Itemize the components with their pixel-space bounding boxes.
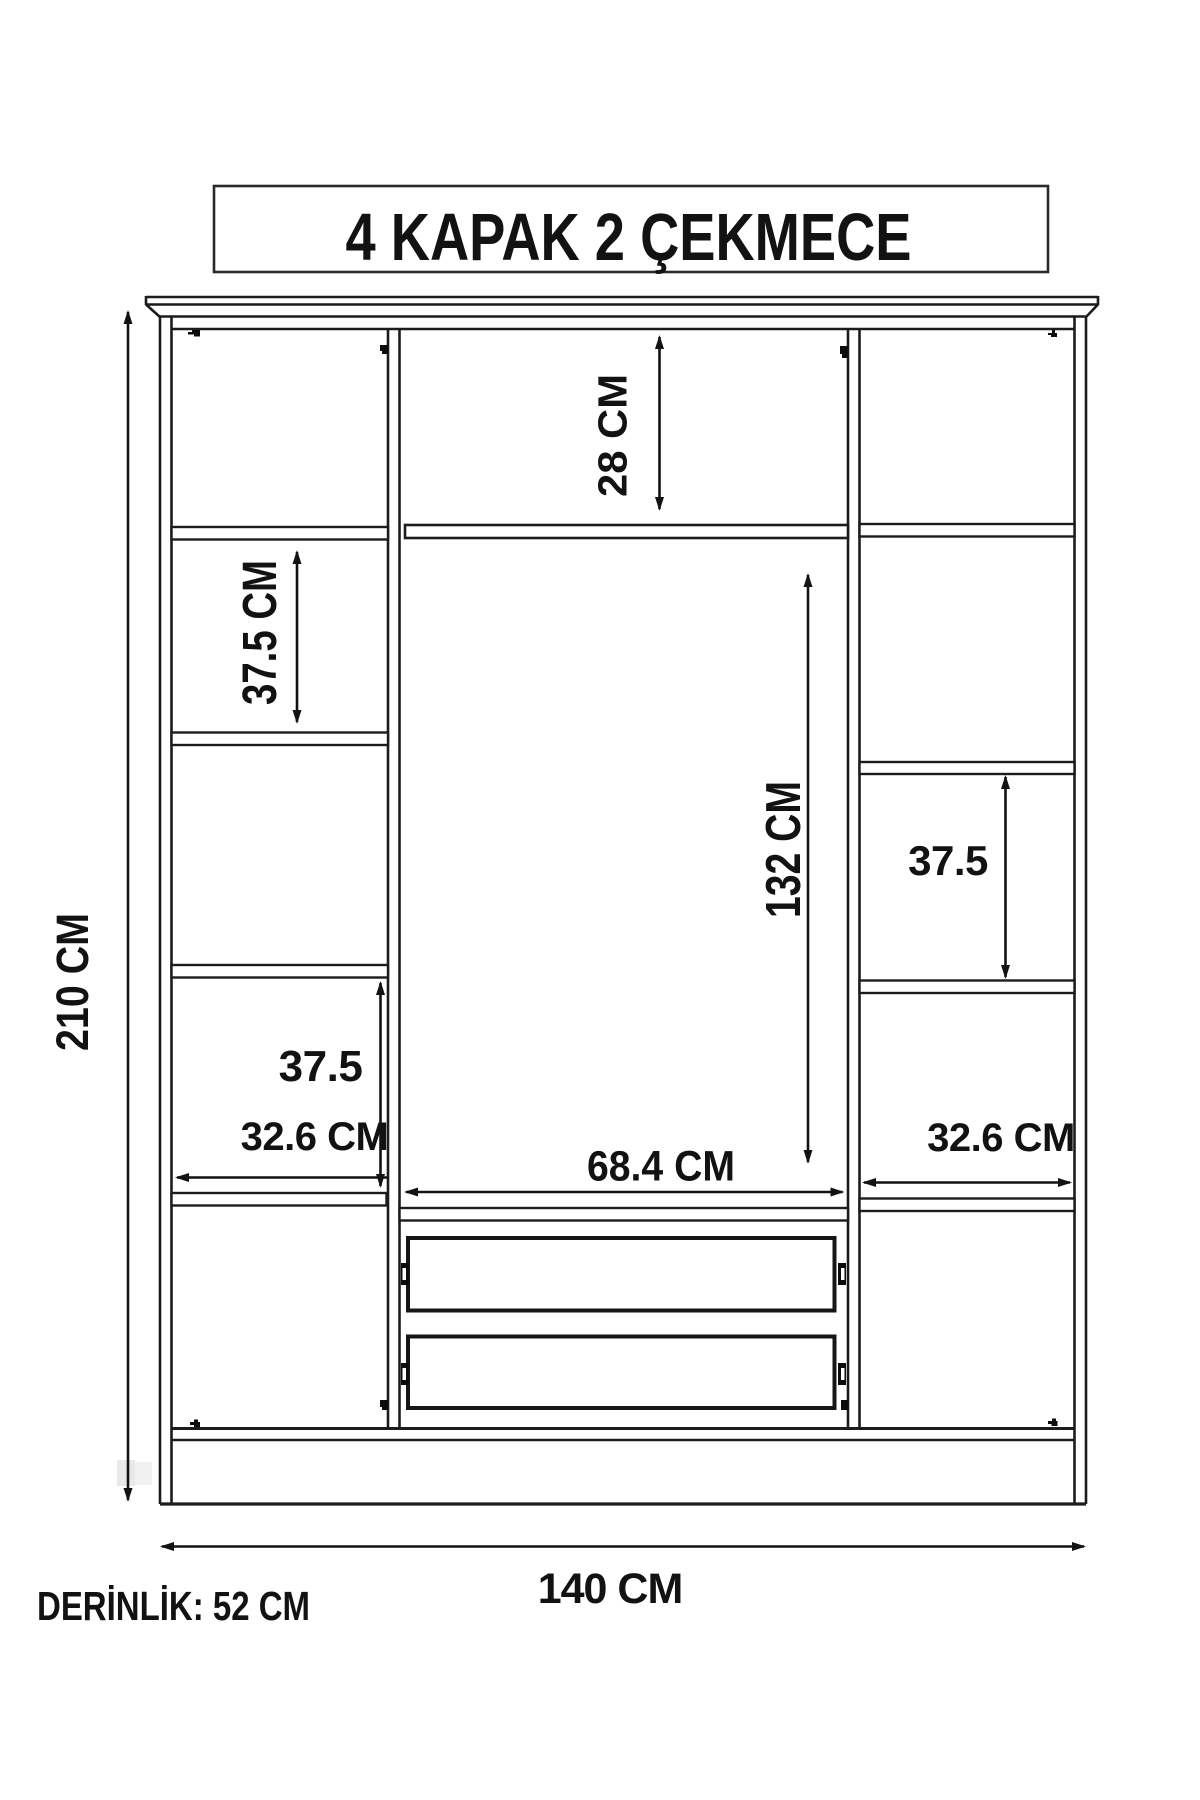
- svg-text:32.6 CM: 32.6 CM: [241, 1115, 389, 1159]
- svg-text:DERİNLİK: 52 CM: DERİNLİK: 52 CM: [37, 1583, 310, 1629]
- svg-text:32.6 CM: 32.6 CM: [927, 1116, 1075, 1160]
- svg-text:140 CM: 140 CM: [538, 1565, 683, 1613]
- svg-text:37.5 CM: 37.5 CM: [234, 560, 287, 705]
- svg-text:210 CM: 210 CM: [47, 913, 98, 1051]
- svg-text:37.5: 37.5: [279, 1042, 363, 1091]
- svg-text:28 CM: 28 CM: [590, 374, 636, 497]
- svg-text:4 KAPAK 2 ÇEKMECE: 4 KAPAK 2 ÇEKMECE: [346, 200, 912, 275]
- svg-text:68.4 CM: 68.4 CM: [587, 1143, 735, 1191]
- svg-text:37.5: 37.5: [908, 837, 988, 884]
- svg-text:132 CM: 132 CM: [757, 781, 811, 918]
